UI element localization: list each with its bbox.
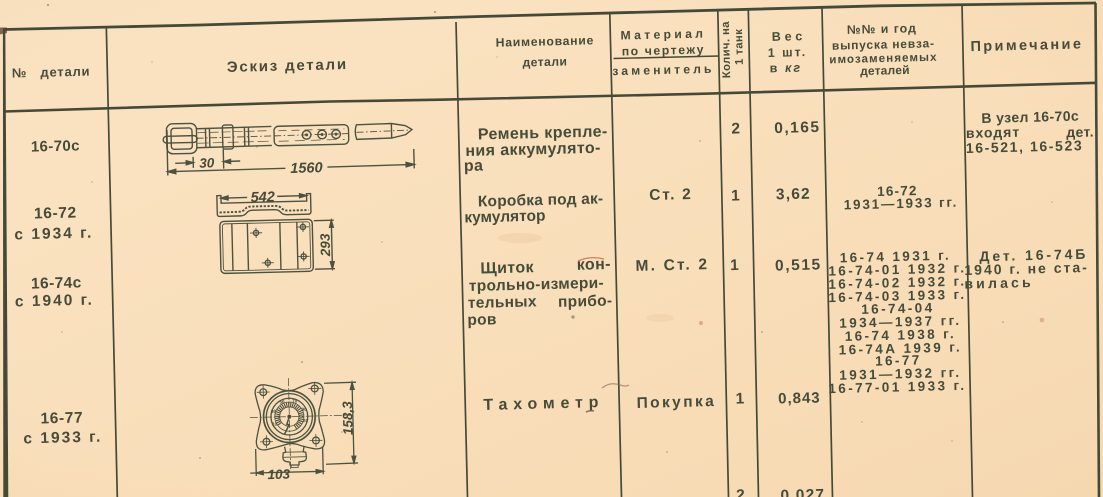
svg-text:Вес: Вес — [772, 29, 807, 44]
svg-text:542: 542 — [250, 189, 275, 206]
svg-text:1: 1 — [730, 257, 740, 274]
svg-text:детали: детали — [522, 54, 567, 69]
svg-text:ра: ра — [464, 158, 484, 175]
svg-text:Примечание: Примечание — [970, 36, 1083, 55]
svg-text:1560: 1560 — [290, 160, 323, 177]
svg-text:0,843: 0,843 — [778, 389, 821, 407]
svg-text:1931—1933 гг.: 1931—1933 гг. — [844, 195, 959, 213]
svg-text:прибо-: прибо- — [558, 293, 613, 311]
svg-text:ния аккумулято-: ния аккумулято- — [465, 140, 601, 160]
svg-text:Щиток: Щиток — [480, 259, 535, 277]
svg-text:293: 293 — [318, 233, 334, 257]
svg-text:1 шт.: 1 шт. — [768, 45, 808, 60]
svg-text:ров: ров — [467, 311, 497, 329]
svg-text:заменитель: заменитель — [612, 62, 715, 78]
svg-text:в кг: в кг — [769, 61, 802, 76]
svg-text:3,62: 3,62 — [776, 186, 811, 204]
svg-text:90: 90 — [302, 407, 308, 412]
svg-text:кумулятор: кумулятор — [464, 208, 545, 227]
svg-text:10: 10 — [272, 422, 278, 427]
svg-text:1: 1 — [731, 187, 741, 204]
svg-text:№№ и год: №№ и год — [847, 21, 917, 37]
svg-text:Колич. на: Колич. на — [720, 21, 733, 79]
svg-text:Ст. 2: Ст. 2 — [649, 186, 693, 204]
svg-text:Материал: Материал — [620, 26, 706, 42]
svg-text:вилась: вилась — [964, 274, 1034, 292]
svg-text:2: 2 — [736, 487, 746, 497]
svg-text:30: 30 — [199, 155, 215, 170]
svg-text:103: 103 — [267, 467, 290, 483]
svg-text:0,027: 0,027 — [780, 486, 825, 497]
svg-text:16-521, 16-523: 16-521, 16-523 — [966, 137, 1084, 156]
svg-text:1 танк: 1 танк — [733, 29, 746, 65]
svg-text:0,165: 0,165 — [774, 119, 821, 137]
svg-text:трольно-измери-: трольно-измери- — [469, 275, 604, 295]
svg-text:М. Ст. 2: М. Ст. 2 — [635, 256, 709, 275]
svg-text:2: 2 — [731, 120, 741, 137]
svg-text:деталей: деталей — [860, 63, 910, 78]
svg-text:с 1934 г.: с 1934 г. — [14, 225, 93, 244]
svg-text:с 1933 г.: с 1933 г. — [23, 429, 102, 448]
svg-text:Наименование: Наименование — [496, 33, 595, 49]
svg-text:20: 20 — [303, 418, 309, 423]
svg-text:с 1940 г.: с 1940 г. — [15, 292, 94, 311]
svg-text:Эскиз детали: Эскиз детали — [227, 56, 348, 76]
svg-text:по чертежу: по чертежу — [622, 42, 706, 58]
svg-text:кон-: кон- — [577, 256, 612, 274]
svg-text:тельных: тельных — [468, 293, 537, 312]
svg-text:30: 30 — [271, 409, 277, 414]
svg-text:16-74с: 16-74с — [31, 274, 82, 292]
svg-text:1: 1 — [735, 390, 745, 407]
svg-text:Покупка: Покупка — [636, 393, 716, 412]
svg-text:0,515: 0,515 — [775, 256, 822, 274]
svg-text:№ детали: № детали — [12, 64, 91, 81]
svg-text:16-77: 16-77 — [40, 409, 83, 427]
svg-text:16-72: 16-72 — [34, 204, 77, 222]
svg-text:158,3: 158,3 — [340, 401, 356, 436]
svg-text:В узел 16-70с: В узел 16-70с — [981, 108, 1079, 126]
svg-text:16-70с: 16-70с — [31, 137, 81, 155]
svg-text:70: 70 — [292, 398, 298, 403]
